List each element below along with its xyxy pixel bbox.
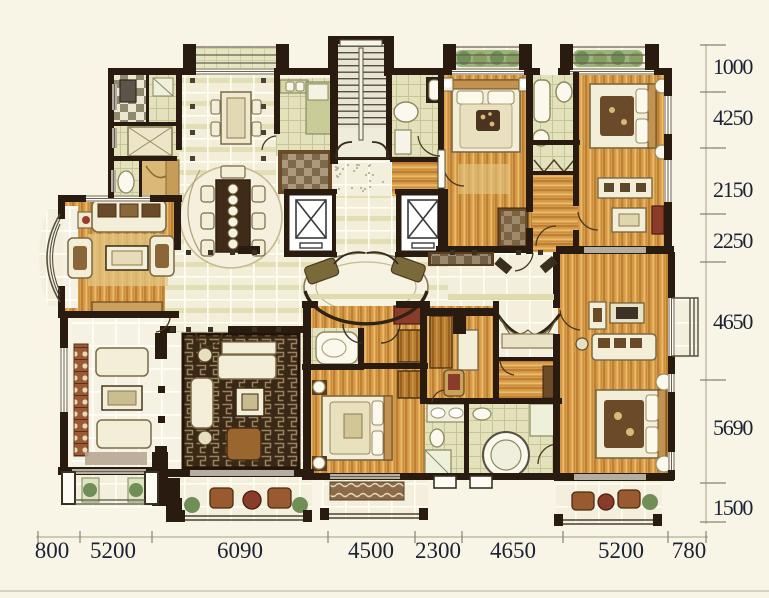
svg-text:780: 780 [672, 538, 707, 563]
svg-text:2250: 2250 [713, 228, 753, 253]
svg-text:1000: 1000 [713, 54, 753, 79]
svg-text:6090: 6090 [217, 538, 263, 563]
svg-text:4650: 4650 [713, 309, 753, 334]
svg-text:4650: 4650 [490, 538, 536, 563]
svg-text:5200: 5200 [90, 538, 136, 563]
svg-text:4500: 4500 [348, 538, 394, 563]
svg-text:2300: 2300 [415, 538, 461, 563]
svg-text:800: 800 [35, 538, 70, 563]
svg-text:4250: 4250 [713, 105, 753, 130]
svg-text:5200: 5200 [598, 538, 644, 563]
svg-text:5690: 5690 [713, 415, 753, 440]
svg-text:2150: 2150 [713, 177, 753, 202]
svg-text:1500: 1500 [713, 495, 753, 520]
